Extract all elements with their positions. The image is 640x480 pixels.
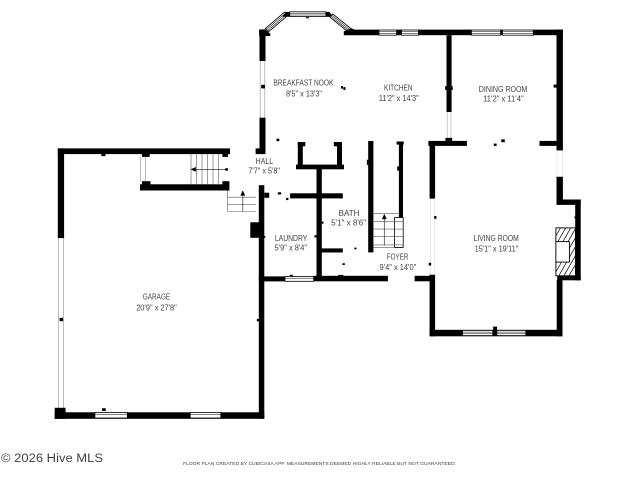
svg-text:11'2" x 14'3": 11'2" x 14'3" [379,93,419,103]
svg-text:© 2026 Hive MLS: © 2026 Hive MLS [1,451,103,465]
svg-text:11'2" x 11'4": 11'2" x 11'4" [483,94,524,104]
svg-text:FOYER: FOYER [387,252,409,261]
svg-text:KITCHEN: KITCHEN [384,84,413,93]
svg-text:7'7" x 5'8": 7'7" x 5'8" [248,165,280,175]
svg-text:BREAKFAST NOOK: BREAKFAST NOOK [273,79,334,88]
svg-text:FLOOR PLAN CREATED BY CUBICASA: FLOOR PLAN CREATED BY CUBICASA APP. MEAS… [183,461,456,467]
svg-text:LIVING ROOM: LIVING ROOM [474,234,519,243]
svg-text:8'5" x 13'3": 8'5" x 13'3" [286,89,322,99]
svg-text:5'1" x 8'6": 5'1" x 8'6" [331,218,366,228]
svg-text:20'9" x 27'8": 20'9" x 27'8" [136,302,177,312]
svg-text:GARAGE: GARAGE [143,293,170,302]
svg-text:15'1" x 19'11": 15'1" x 19'11" [475,243,519,253]
svg-text:9'4" x 14'0": 9'4" x 14'0" [380,262,417,272]
svg-text:5'9" x 8'4": 5'9" x 8'4" [275,242,307,252]
